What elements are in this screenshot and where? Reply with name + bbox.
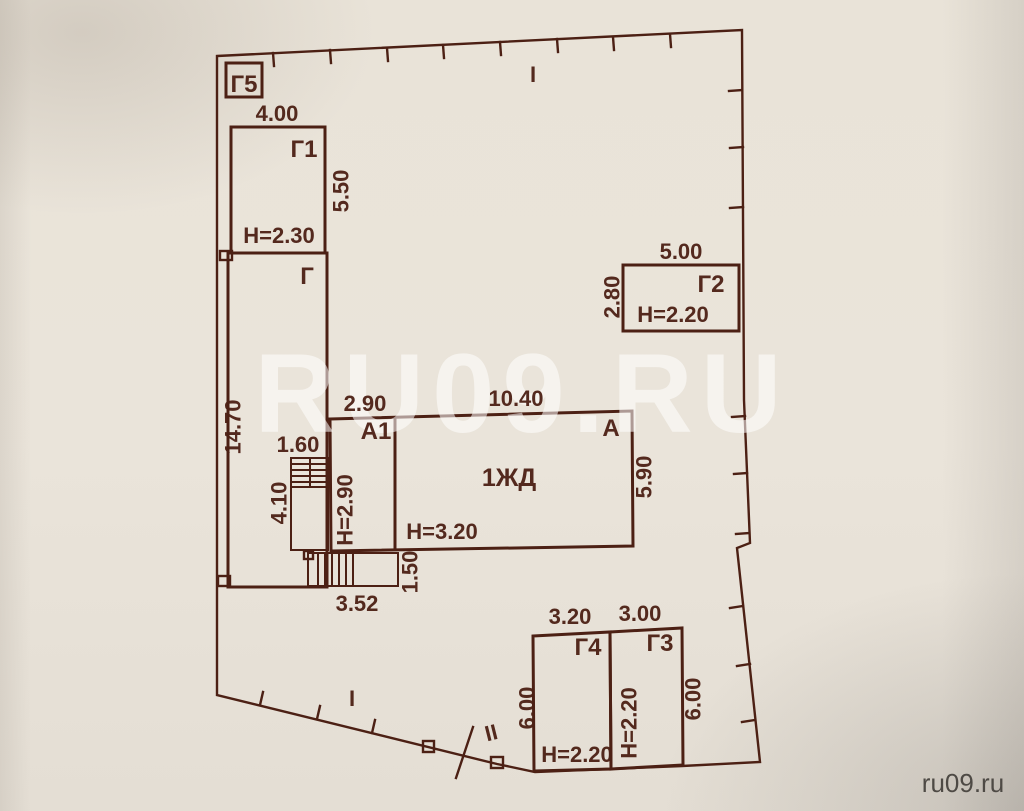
building-label-g4: Г4 <box>575 634 603 661</box>
dim-g3-height: Н=2.20 <box>617 687 642 759</box>
scanned-site-plan-photo: RU09.RU Г5 4.00 Г1 5.50 Н=2.30 Г 14.70 5… <box>0 0 1024 811</box>
dim-stairs-depth: 4.10 <box>267 482 292 525</box>
dim-a1-height: Н=2.90 <box>333 474 358 546</box>
building-use-a: 1ЖД <box>482 464 536 492</box>
building-label-g2: Г2 <box>698 271 725 298</box>
stairs-treads <box>291 458 328 487</box>
dim-g4-depth: 6.00 <box>515 687 540 730</box>
boundary-hatch-slant <box>260 692 375 733</box>
dim-stairs-width: 1.60 <box>277 432 320 457</box>
lobby-outline <box>291 487 328 550</box>
dim-a-depth: 5.90 <box>632 456 657 499</box>
dim-g2-height: Н=2.20 <box>637 302 709 327</box>
dim-a1-width: 2.90 <box>344 391 387 416</box>
section-divider-slash <box>456 727 473 778</box>
dim-g3-width: 3.00 <box>619 601 662 626</box>
site-plan-drawing: RU09.RU Г5 4.00 Г1 5.50 Н=2.30 Г 14.70 5… <box>0 0 1024 811</box>
dim-a-height: Н=3.20 <box>406 519 478 544</box>
dim-g4-height: Н=2.20 <box>541 742 613 767</box>
building-label-g5: Г5 <box>231 71 258 98</box>
watermark-corner: ru09.ru <box>922 768 1004 798</box>
dim-a-width: 10.40 <box>488 386 543 411</box>
dim-porch-width: 3.52 <box>336 591 379 616</box>
dim-g-length: 14.70 <box>221 399 246 454</box>
dim-g3-depth: 6.00 <box>681 678 706 721</box>
dim-g1-depth: 5.50 <box>329 170 354 213</box>
building-label-g1: Г1 <box>291 136 318 163</box>
section-mark-bottom: I <box>349 686 355 711</box>
porch-steps <box>318 554 353 585</box>
building-label-g3: Г3 <box>647 630 674 657</box>
building-label-a: А <box>602 415 619 442</box>
dim-g4-width: 3.20 <box>549 604 592 629</box>
building-label-a1: А1 <box>361 418 392 445</box>
dim-g2-width: 5.00 <box>660 239 703 264</box>
dim-g1-width: 4.00 <box>256 101 299 126</box>
dim-g1-height: Н=2.30 <box>243 223 315 248</box>
section-mark-top: I <box>530 62 536 87</box>
section-mark-second: II <box>482 719 500 746</box>
dim-porch-depth: 1.50 <box>398 551 423 594</box>
building-label-g: Г <box>300 263 314 290</box>
dim-g2-depth: 2.80 <box>600 276 625 319</box>
